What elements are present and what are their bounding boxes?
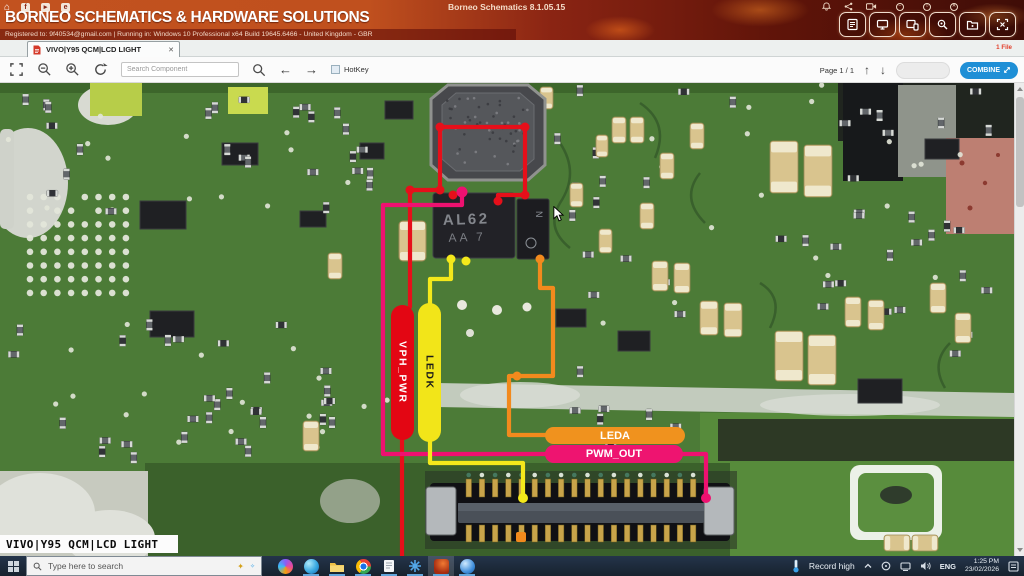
files-button[interactable] — [959, 12, 986, 37]
scan-expand-icon — [996, 18, 1009, 31]
devices-icon — [906, 18, 919, 31]
mouse-cursor — [552, 206, 566, 227]
date: 23/02/2026 — [965, 566, 999, 574]
magnifier-gear-icon — [936, 18, 949, 31]
windows-logo-icon — [8, 561, 19, 572]
vertical-scrollbar[interactable] — [1014, 83, 1024, 556]
network-icon[interactable] — [900, 562, 911, 571]
search-component-input[interactable] — [121, 62, 239, 77]
registration-text: Registered to: 9f40534@gmail.com | Runni… — [0, 29, 516, 40]
copilot-sparkle-icon: ✦ — [237, 562, 244, 571]
gear-icon — [408, 559, 422, 573]
secondary-action-button[interactable] — [896, 62, 950, 79]
pcb-photo: AL62 AA 7 N — [0, 83, 1014, 556]
scrollbar-thumb[interactable] — [1016, 97, 1024, 207]
combine-button[interactable]: COMBINE — [960, 62, 1018, 79]
taskbar-search[interactable]: ✦✧ — [26, 556, 262, 576]
notification-center-icon[interactable] — [1008, 561, 1019, 572]
file-icon — [33, 45, 41, 55]
search-icon[interactable] — [252, 63, 266, 77]
thermometer-icon — [792, 559, 800, 573]
net-label-pwm-out[interactable]: PWM_OUT — [545, 445, 683, 463]
folder-icon — [329, 560, 345, 573]
tab-strip: VIVO|Y95 QCM|LCD LIGHT ✕ 1 File — [0, 40, 1024, 57]
zoom-in-button[interactable] — [65, 62, 80, 77]
taskbar-app-chrome[interactable] — [350, 556, 376, 576]
library-button[interactable] — [839, 12, 866, 37]
expand-icon — [1003, 66, 1011, 74]
page-down-button[interactable]: ↓ — [880, 64, 886, 76]
taskbar-app-settings[interactable] — [402, 556, 428, 576]
maximize-button[interactable]: ○ — [923, 3, 931, 11]
side-chip: N — [517, 199, 549, 259]
svg-text:N: N — [534, 211, 544, 218]
tab-vivo-y95[interactable]: VIVO|Y95 QCM|LCD LIGHT ✕ — [27, 41, 180, 57]
taskbar-search-input[interactable] — [48, 561, 198, 571]
presentation-button[interactable] — [869, 12, 896, 37]
video-camera-icon[interactable] — [866, 2, 877, 11]
clock[interactable]: 1:25 PM 23/02/2026 — [965, 558, 999, 575]
monitor-icon — [876, 18, 889, 31]
tab-close-icon[interactable]: ✕ — [168, 46, 174, 54]
search-icon — [33, 562, 42, 571]
taskbar-app-explorer[interactable] — [324, 556, 350, 576]
volume-icon[interactable] — [920, 561, 931, 571]
taskbar-app-edge[interactable] — [298, 556, 324, 576]
zoom-out-button[interactable] — [37, 62, 52, 77]
sparkle-small-icon: ✧ — [250, 563, 255, 570]
scroll-up-arrow[interactable] — [1017, 87, 1023, 91]
tab-label: VIVO|Y95 QCM|LCD LIGHT — [46, 45, 141, 54]
led-driver-chip: AL62 AA 7 — [433, 193, 515, 258]
taskbar-app-copilot[interactable] — [272, 556, 298, 576]
net-label-ledk[interactable]: LEDK — [418, 303, 441, 442]
hotkey-checkbox[interactable] — [331, 65, 340, 74]
edge-icon — [304, 559, 319, 574]
fullscreen-button[interactable] — [989, 12, 1016, 37]
forward-arrow-button[interactable]: → — [305, 63, 318, 76]
device-link-button[interactable] — [899, 12, 926, 37]
share-icon[interactable] — [844, 2, 853, 11]
page-up-button[interactable]: ↑ — [864, 64, 870, 76]
document-icon — [383, 559, 395, 573]
lcd-connector — [425, 471, 737, 549]
inspect-button[interactable] — [929, 12, 956, 37]
taskbar-app-notes[interactable] — [376, 556, 402, 576]
header-actions — [839, 12, 1016, 37]
page-indicator: Page 1 / 1 — [820, 66, 854, 75]
svg-text:AA 7: AA 7 — [448, 230, 486, 245]
folder-icon — [966, 18, 979, 31]
scroll-down-arrow[interactable] — [1017, 548, 1023, 552]
borneo-app-icon — [434, 559, 449, 574]
copilot-icon — [278, 559, 293, 574]
net-label-vph-pwr[interactable]: VPH_PWR — [391, 305, 414, 440]
globe-app-icon — [460, 559, 475, 574]
language-indicator[interactable]: ENG — [940, 562, 956, 571]
weather-status[interactable]: Record high — [809, 561, 855, 571]
time: 1:25 PM — [965, 558, 999, 566]
inductor-coil — [431, 85, 545, 180]
refresh-button[interactable] — [93, 62, 108, 77]
board-title-overlay: VIVO|Y95 QCM|LCD LIGHT — [0, 535, 178, 553]
back-arrow-button[interactable]: ← — [279, 63, 292, 76]
update-tray-icon[interactable] — [881, 561, 891, 571]
tray-chevron-icon[interactable] — [864, 563, 872, 569]
net-label-leda[interactable]: LEDA — [545, 427, 685, 444]
window-title: Borneo Schematics 8.1.05.15 — [448, 2, 565, 12]
document-icon — [846, 18, 859, 31]
minimize-button[interactable]: − — [896, 3, 904, 11]
taskbar-app-borneo[interactable] — [428, 556, 454, 576]
files-badge: 1 File — [996, 44, 1012, 51]
hotkey-label: HotKey — [344, 65, 369, 74]
schematic-canvas[interactable]: AL62 AA 7 N — [0, 83, 1014, 556]
fit-screen-button[interactable] — [9, 62, 24, 77]
close-button[interactable]: ✕ — [950, 3, 958, 11]
brand-title: BORNEO SCHEMATICS & HARDWARE SOLUTIONS — [5, 9, 369, 27]
bell-icon[interactable] — [822, 2, 831, 11]
chrome-icon — [356, 559, 371, 574]
title-bar: ⌂ f ▸ e Borneo Schematics 8.1.05.15 BORN… — [0, 0, 1024, 40]
windows-taskbar: ✦✧ Record high ENG 1:25 PM 23/02/2026 — [0, 556, 1024, 576]
chip-marking: AL62 — [443, 210, 490, 229]
taskbar-app-browser[interactable] — [454, 556, 480, 576]
start-button[interactable] — [0, 556, 26, 576]
